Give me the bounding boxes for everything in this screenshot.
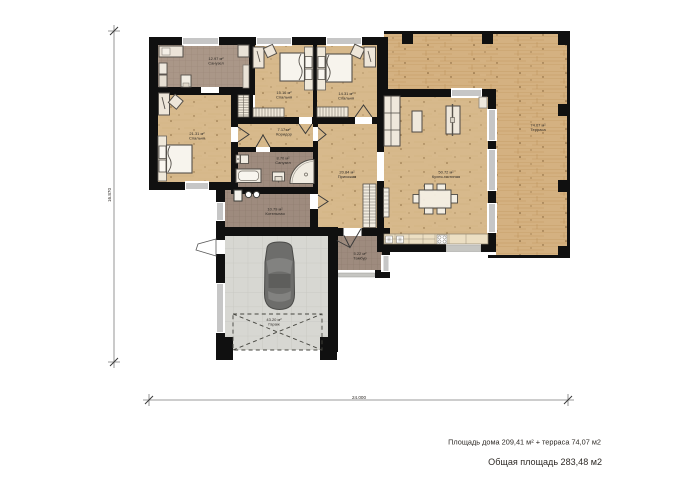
svg-text:24.000: 24.000 — [352, 395, 366, 400]
svg-text:15.16 м²Спальня: 15.16 м²Спальня — [276, 90, 292, 100]
svg-text:12.97 м²Санузел: 12.97 м²Санузел — [208, 56, 224, 66]
svg-text:10.79 м²Котельная: 10.79 м²Котельная — [265, 207, 284, 217]
svg-text:21.31 м²Спальня: 21.31 м²Спальня — [189, 131, 205, 141]
svg-text:Площадь дома 209,41 м² + терра: Площадь дома 209,41 м² + терраса 74,07 м… — [448, 438, 601, 447]
svg-text:74.07 м²Терраса: 74.07 м²Терраса — [530, 123, 546, 133]
svg-text:20.84 м²Прихожая: 20.84 м²Прихожая — [338, 170, 357, 180]
svg-text:16.870: 16.870 — [107, 188, 112, 202]
svg-text:7.17 м²Коридор: 7.17 м²Коридор — [276, 127, 293, 137]
svg-text:14.31 м²Спальня: 14.31 м²Спальня — [338, 91, 354, 101]
svg-text:5.22 м²Тамбур: 5.22 м²Тамбур — [353, 251, 367, 261]
svg-text:Общая площадь 283,48 м2: Общая площадь 283,48 м2 — [488, 457, 602, 467]
svg-text:8.70 м²Санузел: 8.70 м²Санузел — [275, 156, 291, 166]
